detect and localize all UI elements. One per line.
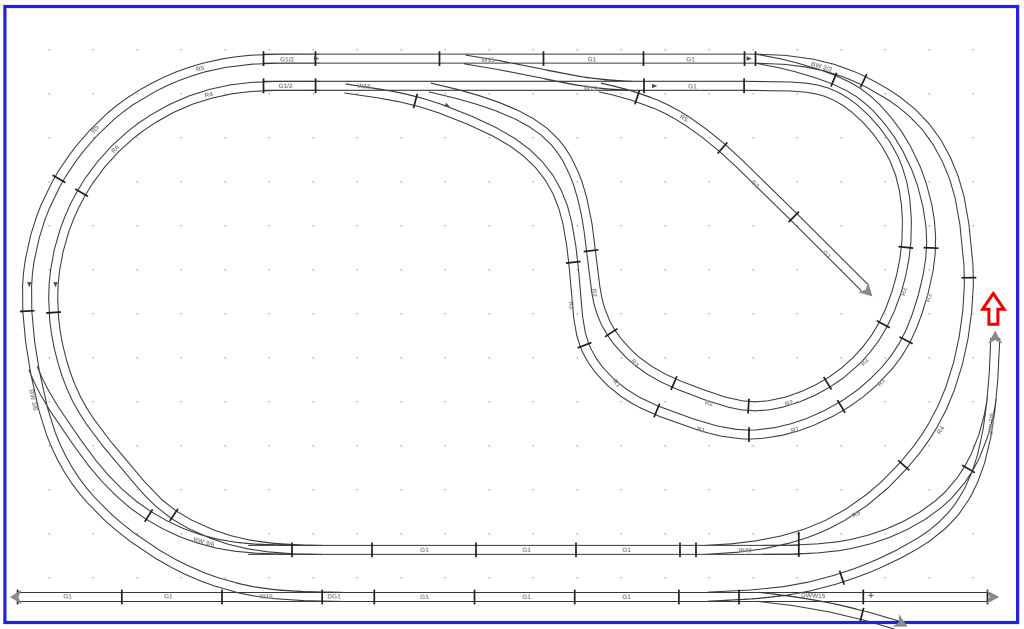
svg-text:G1: G1	[622, 547, 631, 554]
svg-text:G1: G1	[164, 594, 173, 601]
svg-text:G1: G1	[420, 594, 429, 601]
svg-text:R2: R2	[567, 301, 575, 310]
svg-text:G1: G1	[420, 547, 429, 554]
svg-text:R4: R4	[204, 91, 214, 99]
svg-text:W15: W15	[481, 57, 495, 64]
svg-text:G1: G1	[588, 56, 597, 63]
svg-text:G1: G1	[688, 84, 697, 91]
svg-text:DG1: DG1	[327, 594, 341, 601]
svg-text:G1: G1	[522, 594, 531, 601]
svg-text:W40: W40	[739, 548, 753, 555]
svg-text:G1: G1	[63, 594, 72, 601]
svg-text:G1: G1	[686, 56, 695, 63]
svg-text:G1: G1	[522, 547, 531, 554]
svg-text:G1/2: G1/2	[278, 83, 292, 90]
svg-text:DWW15: DWW15	[801, 592, 826, 600]
svg-text:R2: R2	[590, 288, 598, 298]
svg-text:W15: W15	[357, 83, 371, 91]
svg-text:G1: G1	[622, 594, 631, 601]
svg-text:G1/2: G1/2	[280, 56, 294, 63]
svg-text:W15: W15	[259, 593, 273, 600]
